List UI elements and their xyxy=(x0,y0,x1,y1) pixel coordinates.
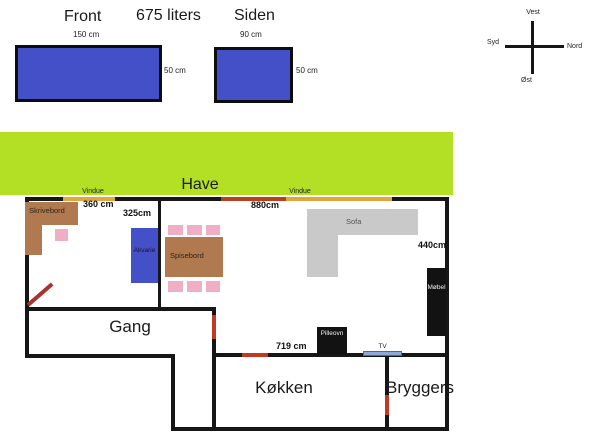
utility-door-segment xyxy=(385,395,389,415)
sofa-top xyxy=(307,209,418,235)
window-2-segment xyxy=(286,197,392,201)
wall-corridor-west xyxy=(171,354,175,431)
volume-title: 675 liters xyxy=(136,7,201,25)
aquarium-rect xyxy=(131,228,158,283)
sofa-leg xyxy=(307,235,338,277)
compass-horizontal-line xyxy=(505,45,564,48)
compass-left-label: Syd xyxy=(487,39,499,46)
dining-table-label: Spisebord xyxy=(170,251,204,260)
chair xyxy=(206,225,220,235)
desk-label: Skrivebord xyxy=(29,206,65,215)
chair xyxy=(187,281,202,292)
sofa-label: Sofa xyxy=(346,217,361,226)
tv xyxy=(363,351,402,356)
chair xyxy=(168,281,183,292)
garden-label: Have xyxy=(170,176,230,194)
compass-right-label: Nord xyxy=(567,43,582,50)
room-label-utility: Bryggers xyxy=(386,378,454,398)
wall-office-east xyxy=(158,197,161,310)
front-tank-height-label: 50 cm xyxy=(164,66,186,75)
measure-440: 440cm xyxy=(418,240,446,250)
room-label-hall: Gang xyxy=(100,317,160,337)
chair xyxy=(206,281,220,292)
window-label-2: Vindue xyxy=(280,188,320,195)
measure-719: 719 cm xyxy=(276,341,307,351)
kitchen-door-segment xyxy=(242,353,268,357)
pellet-stove-label: Pilleovn xyxy=(317,330,347,337)
wall-hall-south xyxy=(25,354,175,358)
side-tank-rect xyxy=(214,47,293,103)
measure-325: 325cm xyxy=(123,208,151,218)
side-tank-width-label: 90 cm xyxy=(240,30,262,39)
side-tank-height-label: 50 cm xyxy=(296,66,318,75)
room-label-kitchen: Køkken xyxy=(252,378,316,398)
cabinet-label: Møbel xyxy=(426,284,447,291)
chair xyxy=(187,225,202,235)
wall-hall-north xyxy=(25,307,216,311)
front-tank-rect xyxy=(15,45,162,102)
hall-living-door-segment xyxy=(212,315,216,339)
measure-880: 880cm xyxy=(251,200,279,210)
window-label-1: Vindue xyxy=(73,188,113,195)
tv-label: TV xyxy=(370,343,395,350)
measure-360: 360 cm xyxy=(83,199,114,209)
front-view-title: Front xyxy=(64,8,101,26)
floor-plan-page: Front 675 liters Siden 150 cm 50 cm 90 c… xyxy=(0,0,600,440)
compass-bottom-label: Øst xyxy=(521,77,532,84)
desk-leg xyxy=(25,225,42,255)
chair xyxy=(168,225,183,235)
front-tank-width-label: 150 cm xyxy=(73,30,99,39)
compass-top-label: Vest xyxy=(520,9,546,16)
office-door-swing xyxy=(27,282,54,306)
office-chair xyxy=(55,229,68,241)
cabinet xyxy=(427,268,446,336)
aquarium-label: Akvarie xyxy=(132,247,157,254)
side-view-title: Siden xyxy=(234,7,275,25)
